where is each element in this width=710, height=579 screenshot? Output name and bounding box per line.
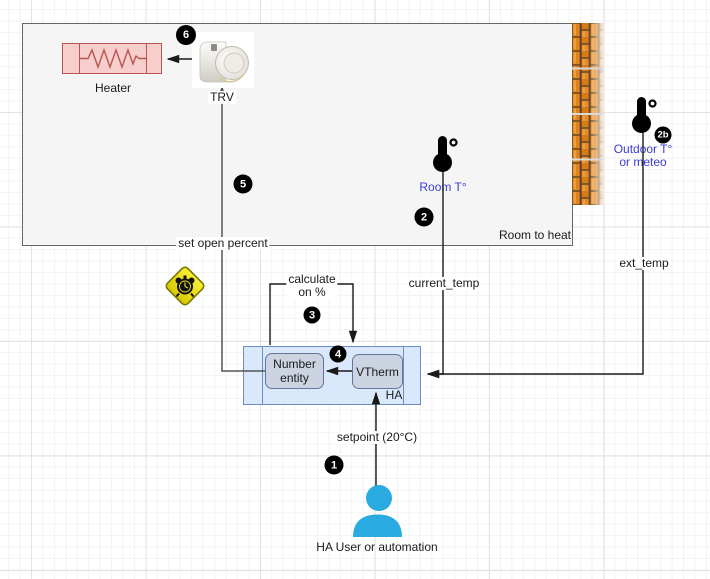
trv-device-icon xyxy=(192,32,254,88)
badge-1: 1 xyxy=(325,456,344,475)
diagram-canvas: Heater TRV xyxy=(0,0,710,579)
badge-6: 6 xyxy=(176,25,196,45)
badge-3: 3 xyxy=(304,307,321,324)
room-temp-label: Room T° xyxy=(419,181,466,194)
badge-5: 5 xyxy=(234,175,253,194)
alarm-clock-warning-icon xyxy=(162,263,208,309)
current-temp-label: current_temp xyxy=(407,277,482,290)
heater-label: Heater xyxy=(95,82,131,95)
outdoor-label: Outdoor T° or meteo xyxy=(614,143,673,169)
number-entity-line1: Number xyxy=(273,357,316,371)
outdoor-label-line2: or meteo xyxy=(614,156,673,169)
vtherm-label: VTherm xyxy=(356,365,399,379)
ha-label: HA xyxy=(386,389,403,402)
outdoor-thermometer-icon xyxy=(626,96,660,134)
trv-label: TRV xyxy=(208,91,236,104)
room-to-heat-label: Room to heat xyxy=(499,229,571,242)
room-thermometer-icon xyxy=(427,135,461,173)
set-open-percent-label: set open percent xyxy=(176,237,269,250)
user-label: HA User or automation xyxy=(316,541,437,554)
vtherm-box: VTherm xyxy=(352,354,403,389)
brick-wall-icon xyxy=(572,23,603,205)
person-icon xyxy=(349,484,406,538)
calculate-label: calculate on % xyxy=(286,273,337,299)
ha-right-band xyxy=(403,347,404,404)
calculate-line2: on % xyxy=(288,286,335,299)
badge-2b: 2b xyxy=(655,127,672,144)
setpoint-label: setpoint (20°C) xyxy=(335,431,419,444)
heater-shape xyxy=(62,43,162,74)
ext-temp-label: ext_temp xyxy=(617,257,670,270)
badge-2: 2 xyxy=(415,208,434,227)
badge-4: 4 xyxy=(330,346,347,363)
number-entity-line2: entity xyxy=(280,371,309,385)
ha-left-band xyxy=(262,347,263,404)
number-entity-box: Number entity xyxy=(265,353,324,389)
